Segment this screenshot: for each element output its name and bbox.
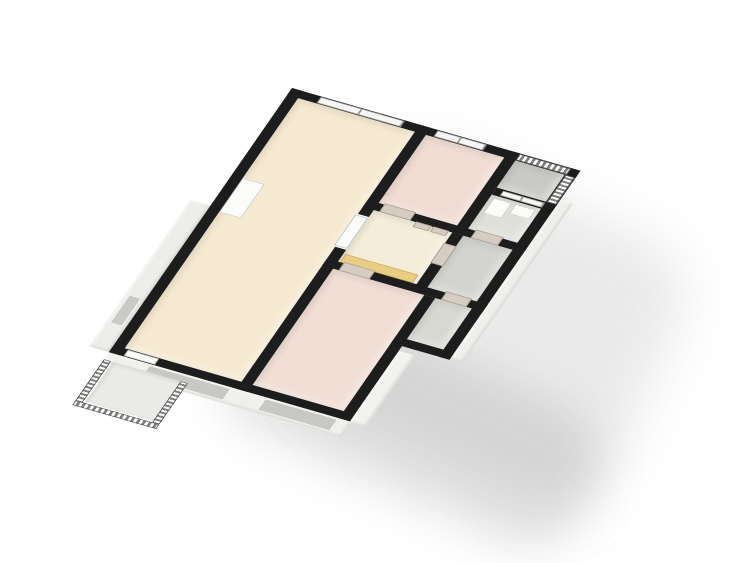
floorplan-render	[0, 0, 750, 563]
